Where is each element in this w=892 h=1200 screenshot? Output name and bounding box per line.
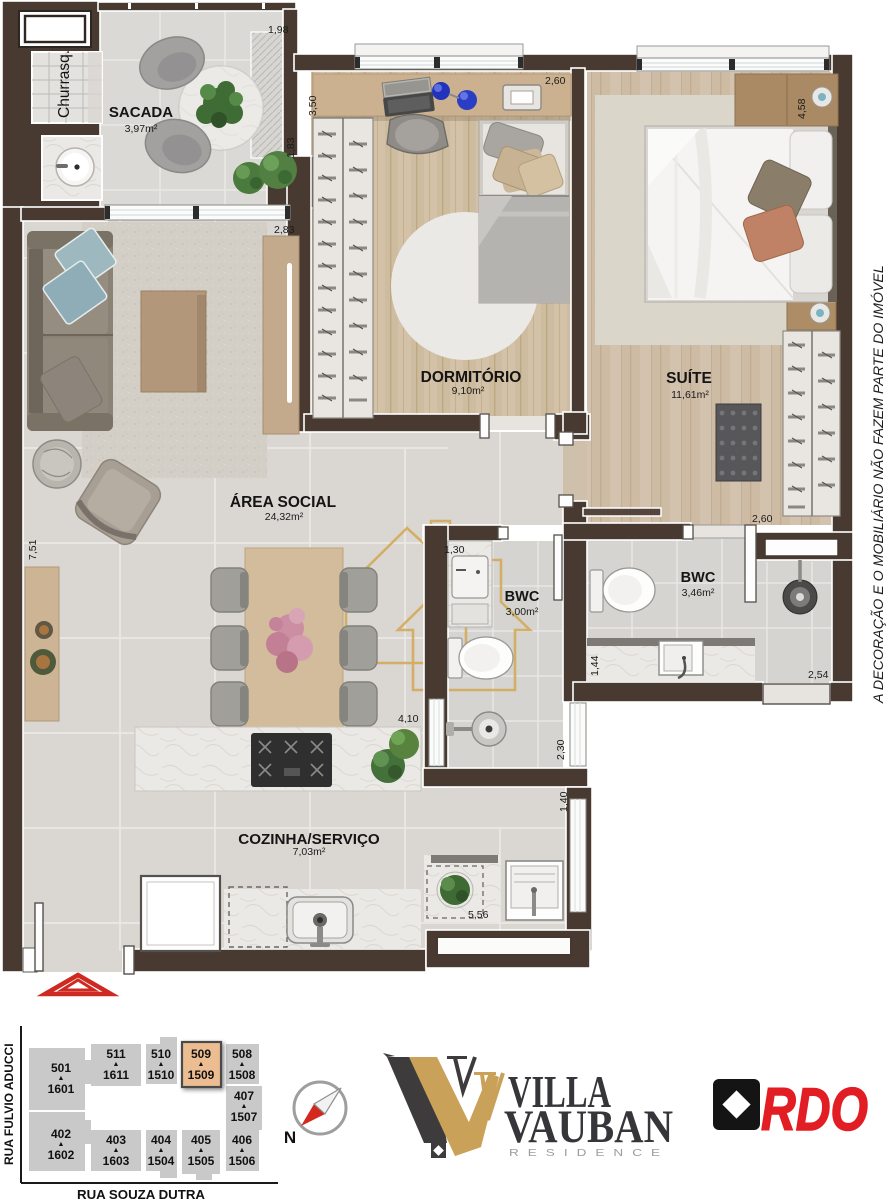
svg-text:510: 510 bbox=[151, 1047, 171, 1061]
svg-text:3,50: 3,50 bbox=[307, 95, 319, 116]
svg-text:▲: ▲ bbox=[239, 1061, 246, 1068]
svg-text:3,00m²: 3,00m² bbox=[506, 606, 539, 618]
svg-text:A DECORAÇÃO E O MOBILIÁRIO NÃO: A DECORAÇÃO E O MOBILIÁRIO NÃO FAZEM PAR… bbox=[870, 265, 887, 704]
svg-text:▲: ▲ bbox=[158, 1147, 165, 1154]
svg-text:1602: 1602 bbox=[48, 1148, 75, 1162]
svg-text:VAUBAN: VAUBAN bbox=[504, 1101, 673, 1153]
svg-text:ÁREA SOCIAL: ÁREA SOCIAL bbox=[230, 494, 336, 511]
svg-text:2,60: 2,60 bbox=[545, 75, 566, 87]
svg-text:RUA SOUZA DUTRA: RUA SOUZA DUTRA bbox=[77, 1187, 206, 1200]
svg-text:1601: 1601 bbox=[48, 1082, 75, 1096]
svg-text:509: 509 bbox=[191, 1047, 211, 1061]
svg-text:▲: ▲ bbox=[198, 1061, 205, 1068]
svg-text:N: N bbox=[284, 1128, 296, 1147]
svg-text:SACADA: SACADA bbox=[109, 104, 173, 121]
svg-text:BWC: BWC bbox=[505, 589, 540, 605]
svg-text:1506: 1506 bbox=[229, 1154, 256, 1168]
svg-text:2,30: 2,30 bbox=[555, 739, 567, 760]
svg-text:DORMITÓRIO: DORMITÓRIO bbox=[421, 368, 522, 386]
svg-text:407: 407 bbox=[234, 1089, 254, 1103]
svg-text:7,51: 7,51 bbox=[27, 539, 39, 560]
svg-text:1509: 1509 bbox=[188, 1068, 215, 1082]
svg-text:24,32m²: 24,32m² bbox=[265, 511, 304, 523]
svg-text:501: 501 bbox=[51, 1061, 71, 1075]
svg-text:1,40: 1,40 bbox=[558, 791, 570, 812]
svg-text:1603: 1603 bbox=[103, 1154, 130, 1168]
svg-text:▲: ▲ bbox=[239, 1147, 246, 1154]
svg-text:4,58: 4,58 bbox=[796, 98, 808, 119]
svg-text:▲: ▲ bbox=[58, 1075, 65, 1082]
svg-text:▲: ▲ bbox=[113, 1147, 120, 1154]
svg-text:5,56: 5,56 bbox=[468, 909, 489, 921]
svg-text:404: 404 bbox=[151, 1133, 171, 1147]
svg-text:511: 511 bbox=[106, 1047, 126, 1061]
svg-text:2,54: 2,54 bbox=[808, 669, 829, 681]
svg-text:▲: ▲ bbox=[113, 1061, 120, 1068]
svg-text:403: 403 bbox=[106, 1133, 126, 1147]
svg-text:2,83: 2,83 bbox=[274, 224, 295, 236]
svg-text:RUA FULVIO ADUCCI: RUA FULVIO ADUCCI bbox=[2, 1043, 16, 1165]
svg-text:2,60: 2,60 bbox=[752, 513, 773, 525]
svg-text:▲: ▲ bbox=[58, 1141, 65, 1148]
svg-text:1,98: 1,98 bbox=[268, 24, 289, 36]
svg-text:9,10m²: 9,10m² bbox=[452, 385, 485, 397]
svg-text:402: 402 bbox=[51, 1127, 71, 1141]
svg-text:Churrasq.: Churrasq. bbox=[56, 50, 73, 118]
svg-text:1508: 1508 bbox=[229, 1068, 256, 1082]
svg-text:1507: 1507 bbox=[231, 1110, 258, 1124]
svg-text:1611: 1611 bbox=[103, 1068, 129, 1082]
svg-text:SUÍTE: SUÍTE bbox=[666, 370, 712, 387]
svg-text:406: 406 bbox=[232, 1133, 252, 1147]
svg-text:▲: ▲ bbox=[198, 1147, 205, 1154]
svg-text:4,10: 4,10 bbox=[398, 713, 419, 725]
svg-text:7,03m²: 7,03m² bbox=[293, 846, 326, 858]
svg-text:BWC: BWC bbox=[681, 570, 716, 586]
svg-text:405: 405 bbox=[191, 1133, 211, 1147]
svg-text:▲: ▲ bbox=[158, 1061, 165, 1068]
svg-text:1510: 1510 bbox=[148, 1068, 175, 1082]
svg-text:1,44: 1,44 bbox=[589, 655, 601, 676]
svg-text:RESIDENCE: RESIDENCE bbox=[509, 1147, 669, 1159]
svg-text:3,46m²: 3,46m² bbox=[682, 587, 715, 599]
svg-text:RDO: RDO bbox=[761, 1076, 868, 1143]
svg-text:1,30: 1,30 bbox=[444, 544, 465, 556]
svg-text:1504: 1504 bbox=[148, 1154, 175, 1168]
svg-text:1,83: 1,83 bbox=[285, 137, 297, 158]
svg-text:▲: ▲ bbox=[241, 1103, 248, 1110]
svg-text:11,61m²: 11,61m² bbox=[671, 389, 709, 401]
svg-text:3,97m²: 3,97m² bbox=[125, 123, 158, 135]
svg-text:508: 508 bbox=[232, 1047, 252, 1061]
svg-text:1505: 1505 bbox=[188, 1154, 215, 1168]
